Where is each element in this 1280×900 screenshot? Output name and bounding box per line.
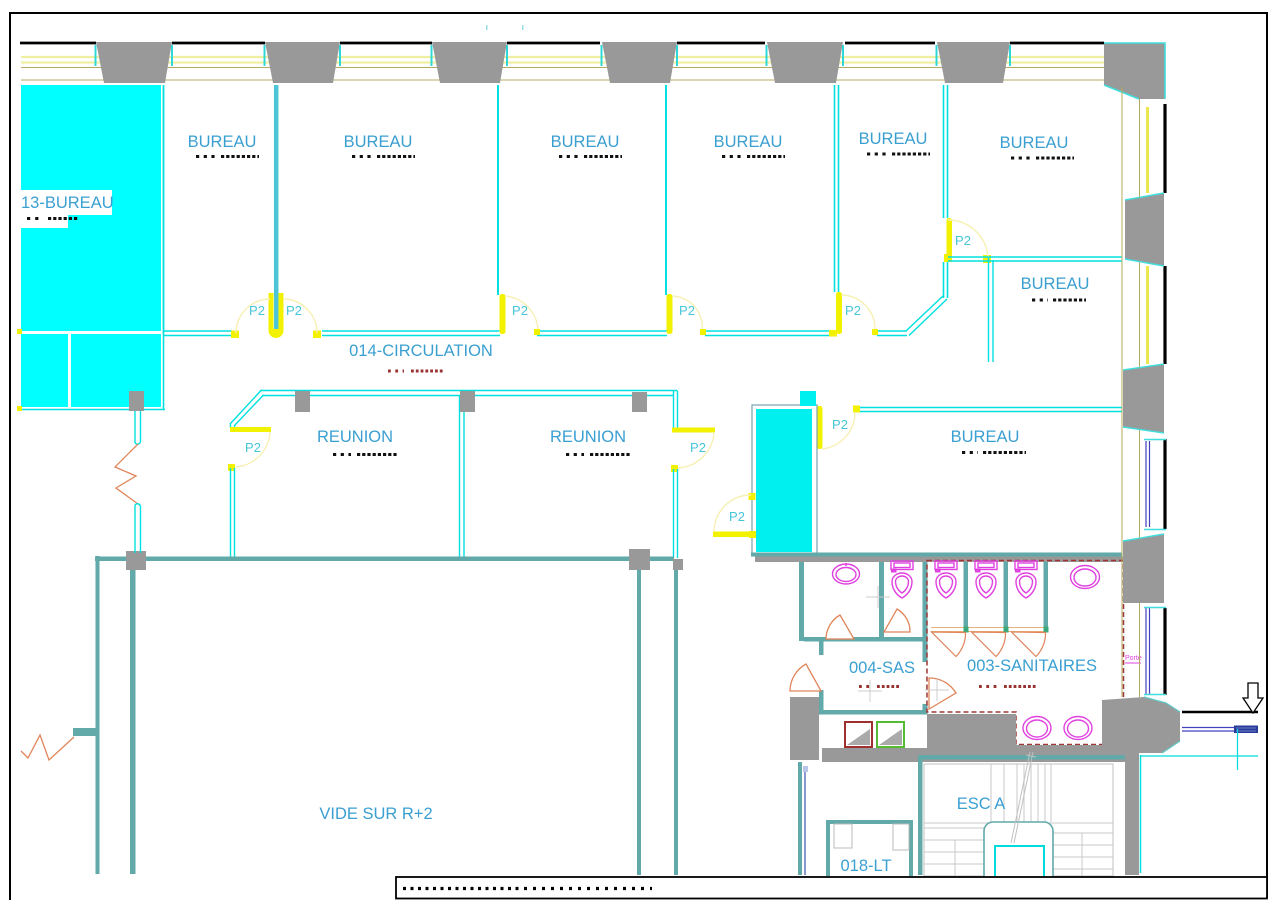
svg-text:P2: P2 [249,303,265,318]
svg-text:P2: P2 [245,440,261,455]
svg-text:BUREAU: BUREAU [551,133,620,151]
svg-text:BUREAU: BUREAU [1021,275,1090,293]
svg-text:VIDE SUR R+2: VIDE SUR R+2 [319,805,432,823]
svg-text:P2: P2 [729,509,745,524]
svg-text:P2: P2 [286,303,302,318]
svg-text:REUNION: REUNION [317,428,393,446]
svg-text:BUREAU: BUREAU [951,428,1020,446]
svg-text:REUNION: REUNION [550,428,626,446]
svg-text:P2: P2 [845,303,861,318]
svg-text:P2: P2 [512,303,528,318]
svg-text:004-SAS: 004-SAS [849,659,915,677]
svg-text:018-LT: 018-LT [840,857,891,875]
svg-text:13-BUREAU: 13-BUREAU [21,194,114,212]
svg-text:P2: P2 [955,233,971,248]
svg-text:BUREAU: BUREAU [859,130,928,148]
svg-text:014-CIRCULATION: 014-CIRCULATION [349,342,493,360]
svg-text:BUREAU: BUREAU [714,133,783,151]
svg-text:BUREAU: BUREAU [188,133,257,151]
svg-text:BUREAU: BUREAU [1000,134,1069,152]
svg-text:P2: P2 [679,303,695,318]
svg-text:P2: P2 [690,440,706,455]
svg-text:BUREAU: BUREAU [344,133,413,151]
svg-text:P2: P2 [832,417,848,432]
svg-text:ESC A: ESC A [957,795,1006,813]
svg-text:003-SANITAIRES: 003-SANITAIRES [967,657,1097,675]
